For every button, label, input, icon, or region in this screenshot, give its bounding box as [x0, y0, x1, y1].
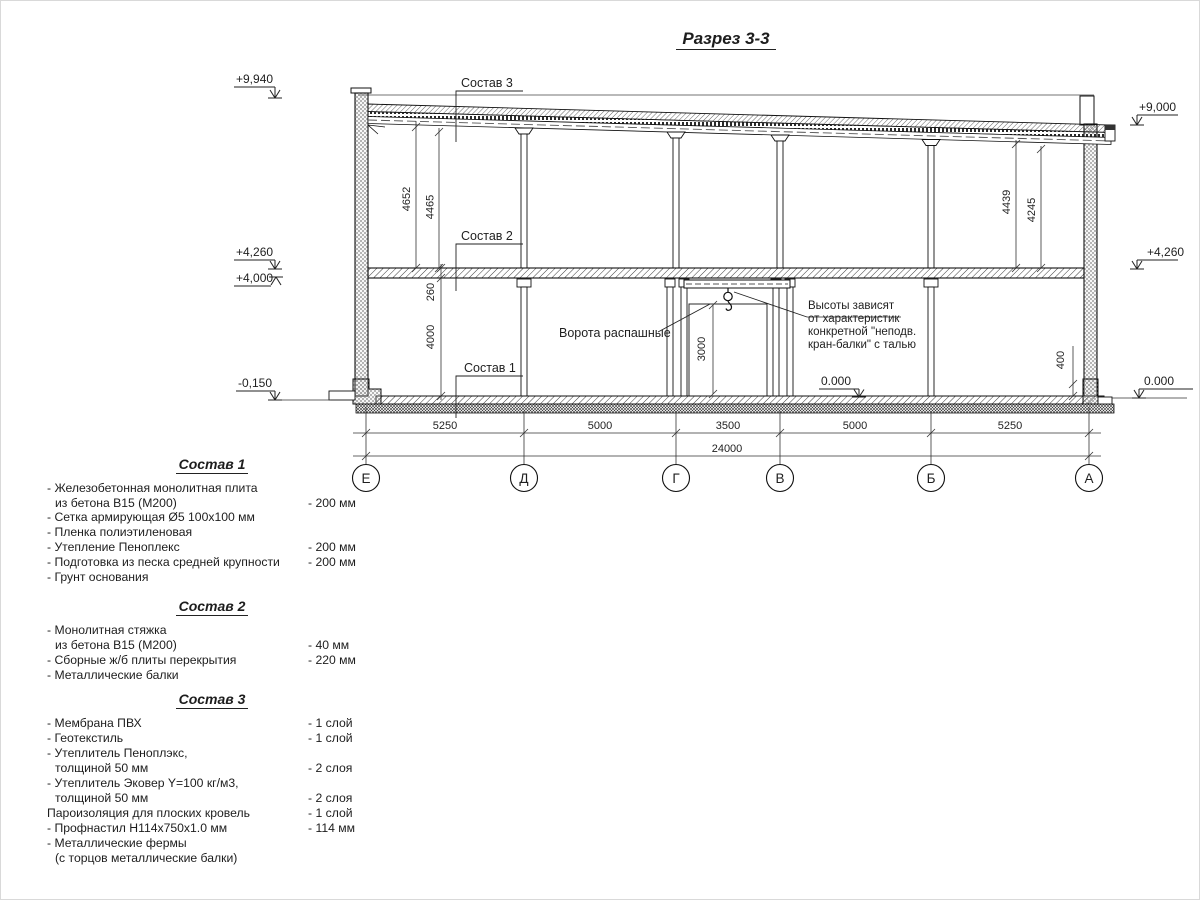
list-item: - Металлические балки [47, 668, 377, 683]
dim-4245: 4245 [1026, 198, 1038, 222]
dim-4652: 4652 [401, 187, 413, 211]
label-gate: Ворота распашные [559, 326, 671, 340]
composition-2-heading: Состав 2 [47, 599, 377, 614]
right-wall [1084, 124, 1097, 396]
intermediate-slab [368, 268, 1084, 278]
elevation-mark-4260-right [1130, 260, 1178, 269]
list-item: - Грунт основания [47, 570, 377, 585]
crane-note-line4: кран-балки" с талью [808, 339, 916, 351]
dim-4000: 4000 [425, 325, 437, 349]
list-item: - Подготовка из песка средней крупности-… [47, 555, 377, 570]
elevation-mark-minus-0150 [236, 391, 282, 400]
ground-preparation-layer [356, 404, 1114, 413]
crane-note-line2: от характеристик [808, 313, 900, 325]
left-parapet-cap [351, 88, 371, 93]
dim-5250-1: 5250 [433, 420, 457, 432]
roof-left-bracket [368, 125, 385, 134]
right-plinth [1083, 379, 1098, 404]
crane-note-line3: конкретной "неподв. [808, 326, 916, 338]
label-sostav3: Состав 3 [461, 76, 513, 90]
dim-3000: 3000 [696, 337, 708, 361]
list-item: - Утеплитель Эковер Y=100 кг/м3, [47, 776, 377, 791]
elevation-left-4260: +4,260 [236, 245, 273, 259]
label-sostav1: Состав 1 [464, 361, 516, 375]
list-item: - Пленка полиэтиленовая [47, 525, 377, 540]
axis-d: Д [519, 471, 528, 486]
roof-edge-flashing [1105, 125, 1115, 130]
upper-columns [515, 128, 940, 268]
elevation-mark-9000 [1130, 115, 1178, 125]
ground-slab [376, 396, 1104, 404]
composition-2: Состав 2 - Монолитная стяжка из бетона В… [47, 599, 377, 683]
list-item: - Монолитная стяжка [47, 623, 377, 638]
list-item: - Профнастил Н114х750х1.0 мм- 114 мм [47, 821, 377, 836]
composition-1: Состав 1 - Железобетонная монолитная пли… [47, 457, 377, 584]
building-structure [281, 88, 1187, 413]
list-item: - Сборные ж/б плиты перекрытия- 220 мм [47, 653, 377, 668]
axis-a: А [1084, 471, 1093, 486]
list-item: - Геотекстиль- 1 слой [47, 731, 377, 746]
list-item: из бетона В15 (М200)- 40 мм [47, 638, 377, 653]
list-item: - Утепление Пеноплекс- 200 мм [47, 540, 377, 555]
elevation-mark-4260-left [234, 260, 282, 269]
list-item: - Сетка армирующая Ø5 100х100 мм [47, 510, 377, 525]
elevation-left-4000: +4,000 [236, 271, 273, 285]
bottom-dimensions [353, 407, 1101, 464]
dim-4439: 4439 [1001, 190, 1013, 214]
axis-bubbles: Е Д Г В Б А [353, 465, 1103, 492]
dim-24000: 24000 [712, 443, 743, 455]
elevation-zero-inner: 0.000 [821, 374, 851, 388]
axis-v: В [775, 471, 784, 486]
list-item: из бетона В15 (М200)- 200 мм [47, 496, 377, 511]
elevation-right-4260: +4,260 [1147, 245, 1184, 259]
axis-g: Г [672, 471, 680, 486]
dim-260: 260 [425, 283, 437, 301]
drawing-sheet: Разрез 3-3 [0, 0, 1200, 900]
crane-note-line1: Высоты зависят [808, 300, 895, 312]
composition-1-heading: Состав 1 [47, 457, 377, 472]
left-plinth-toe [329, 391, 355, 400]
label-sostav2: Состав 2 [461, 229, 513, 243]
composition-3: Состав 3 - Мембрана ПВХ- 1 слой - Геотек… [47, 692, 377, 866]
elevation-mark-zero-right [1132, 389, 1193, 398]
elevation-zero-right: 0.000 [1144, 374, 1174, 388]
elevation-right-top: +9,000 [1139, 100, 1176, 114]
list-item: - Металлические фермы [47, 836, 377, 851]
dim-5000-1: 5000 [588, 420, 612, 432]
dim-400: 400 [1055, 351, 1067, 369]
dim-3500: 3500 [716, 420, 740, 432]
right-parapet [1080, 96, 1094, 125]
dim-5250-2: 5250 [998, 420, 1022, 432]
right-plinth-toe [1098, 397, 1112, 404]
composition-3-heading: Состав 3 [47, 692, 377, 707]
list-item: - Железобетонная монолитная плита [47, 481, 377, 496]
list-item: толщиной 50 мм- 2 слоя [47, 761, 377, 776]
list-item: (с торцов металлические балки) [47, 851, 377, 866]
elevation-mark-9940 [234, 87, 282, 98]
elevation-left-minus-0150: -0,150 [238, 376, 272, 390]
bottom-dimension-labels: 5250 5000 3500 5000 5250 24000 [433, 420, 1022, 455]
dim-4465: 4465 [425, 195, 437, 219]
list-item: - Мембрана ПВХ- 1 слой [47, 716, 377, 731]
axis-b: Б [927, 471, 936, 486]
dim-5000-2: 5000 [843, 420, 867, 432]
elevation-left-top: +9,940 [236, 72, 273, 86]
crane-note: Высоты зависят от характеристик конкретн… [808, 300, 916, 351]
list-item: - Утеплитель Пеноплэкс, [47, 746, 377, 761]
left-plinth [353, 379, 381, 404]
left-wall [355, 93, 368, 396]
list-item: толщиной 50 мм- 2 слоя [47, 791, 377, 806]
list-item: Пароизоляция для плоских кровель- 1 слой [47, 806, 377, 821]
